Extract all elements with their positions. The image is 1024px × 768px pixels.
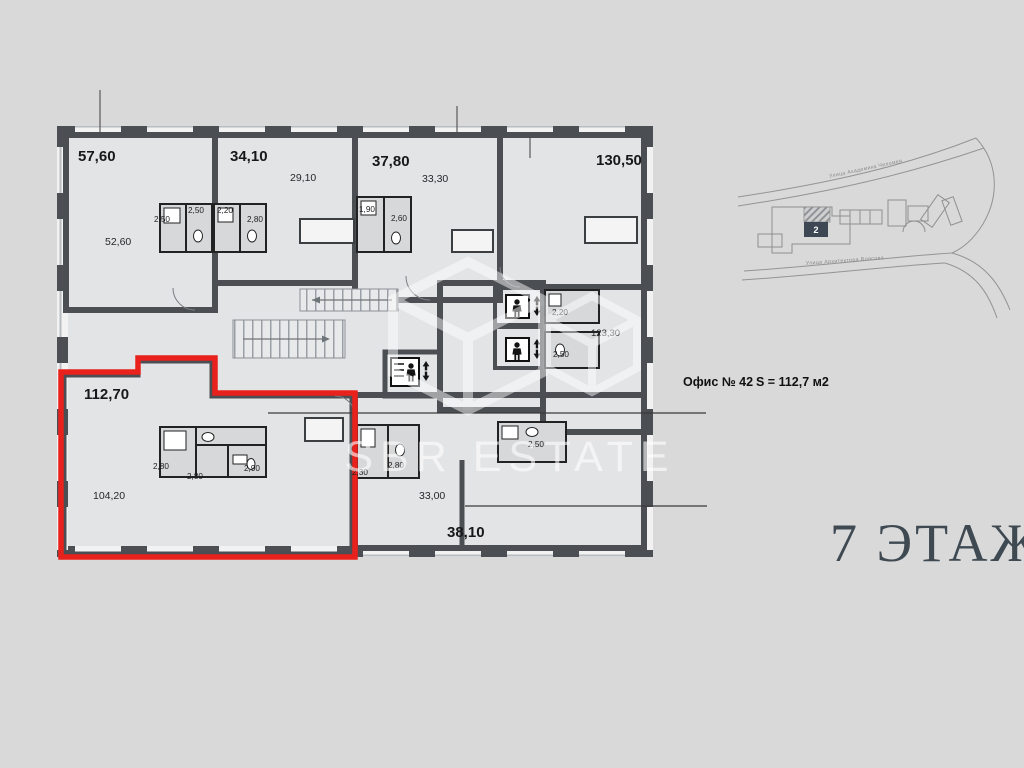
room-main-label: 29,10	[290, 172, 316, 184]
wet-area-label: 2,60	[391, 214, 407, 223]
floor-title: 7 ЭТАЖ	[830, 513, 1024, 573]
sink-icon	[549, 294, 561, 306]
room-total-label: 112,70	[84, 386, 129, 403]
wet-area-label: 2,50	[154, 215, 170, 224]
closet	[305, 418, 343, 441]
sink-icon	[233, 455, 247, 464]
room-main-label: 104,20	[93, 490, 125, 502]
room-total-label: 130,50	[596, 152, 642, 169]
map-marker-label: 2	[813, 225, 818, 235]
room-main-label: 33,00	[419, 490, 445, 502]
wet-area-label: 1,90	[359, 205, 375, 214]
closet	[300, 219, 354, 243]
room-total-label: 37,80	[372, 153, 410, 170]
page: { "watermark": { "brand": "SBR ESTATE" }…	[0, 0, 1024, 768]
office-callout-name: Офис № 42	[683, 375, 753, 389]
wet-area-label: 2,90	[244, 464, 260, 473]
wet-area-label: 2,80	[247, 215, 263, 224]
room-main-label: 52,60	[105, 236, 131, 248]
toilet-icon	[248, 230, 257, 242]
room-total-label: 57,60	[78, 148, 116, 165]
shower-icon	[164, 431, 186, 450]
map-hatched-area	[804, 207, 830, 222]
wet-area-label: 2,50	[553, 350, 569, 359]
room-total-label: 38,10	[447, 524, 485, 541]
toilet-icon	[392, 232, 401, 244]
sink-icon	[202, 433, 214, 442]
wet-area-label: 2,80	[153, 462, 169, 471]
wet-area-label: 2,20	[217, 206, 233, 215]
office-callout-area: S = 112,7 м2	[756, 375, 829, 389]
bathroom-cluster-room1	[160, 204, 212, 252]
floorplan-scene: 57,60 34,10 37,80 130,50 112,70 38,10 52…	[0, 0, 1024, 768]
closet	[452, 230, 493, 252]
closet	[585, 217, 637, 243]
wet-area-label: 2,80	[187, 472, 203, 481]
wet-area-label: 2,50	[188, 206, 204, 215]
toilet-icon	[194, 230, 203, 242]
room-total-label: 34,10	[230, 148, 268, 165]
room-main-label: 33,30	[422, 173, 448, 185]
watermark-brand-text: SBR ESTATE	[344, 433, 675, 481]
